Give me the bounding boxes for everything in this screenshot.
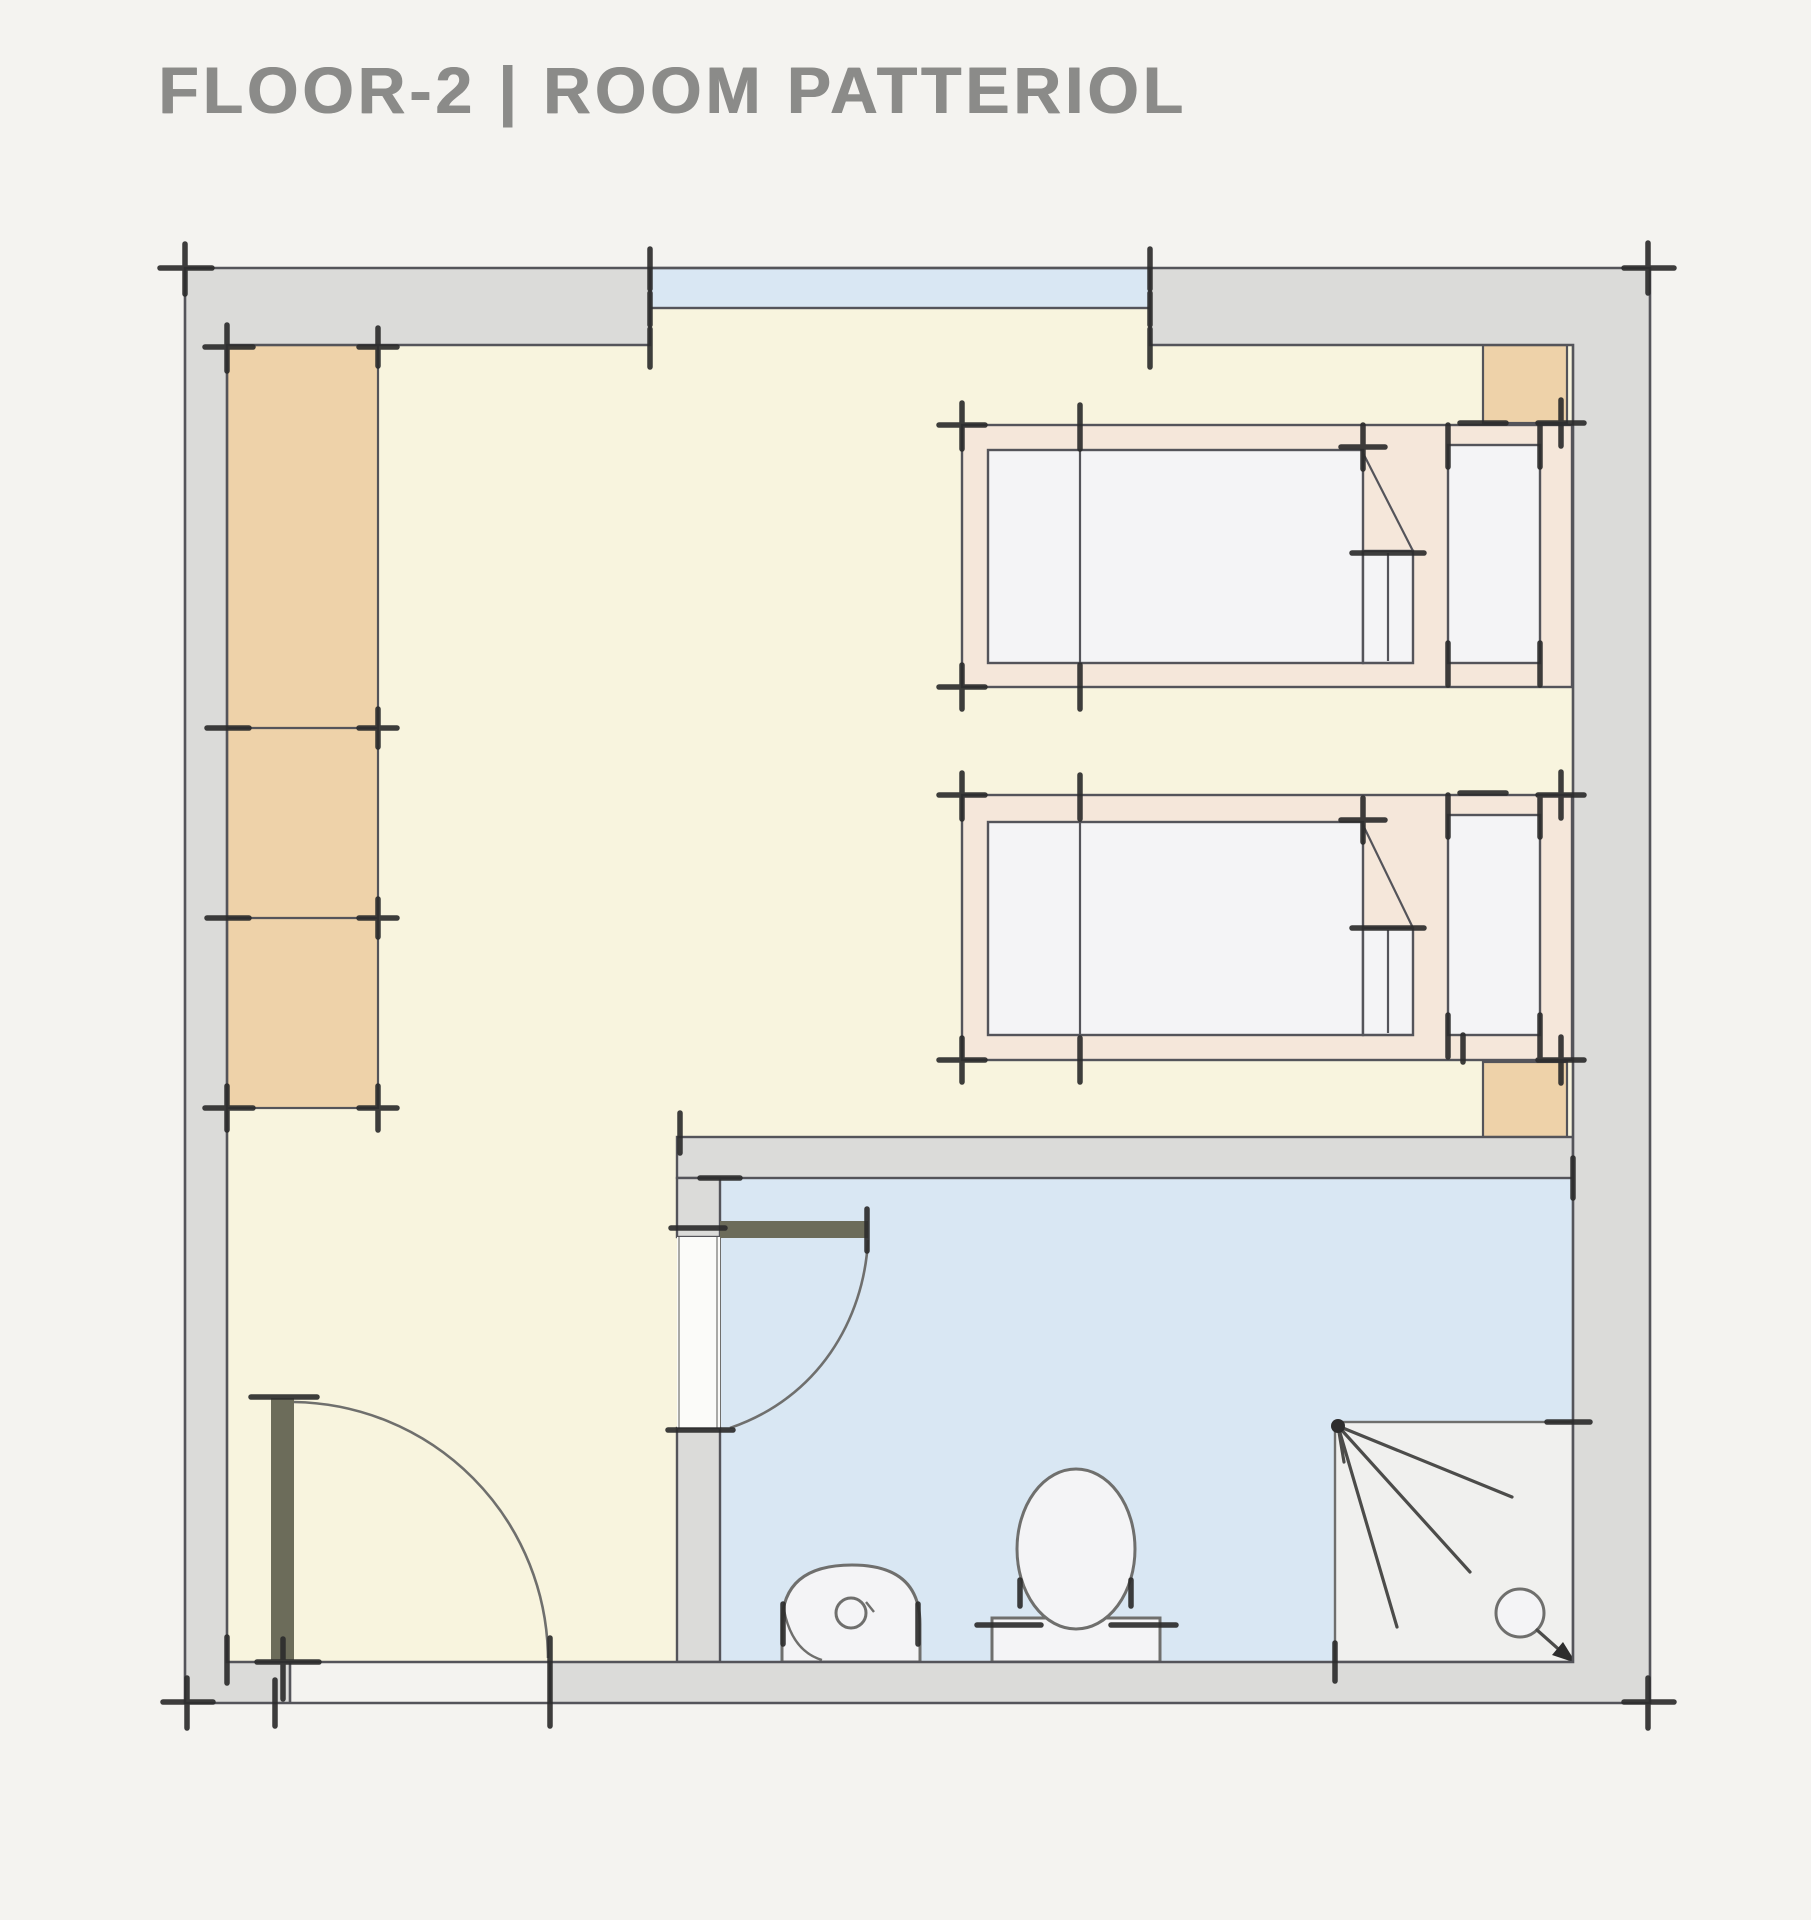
bathroom-door-leaf (720, 1221, 868, 1238)
bed-2-mattress (988, 822, 1363, 1035)
shower-spray-origin (1331, 1419, 1345, 1433)
bathroom-wall-left-lower (677, 1428, 720, 1662)
bathroom-doorway-gap (677, 1237, 720, 1428)
entry-door-leaf (271, 1398, 294, 1660)
sink-drain (836, 1598, 866, 1628)
toilet-bowl (1017, 1469, 1135, 1629)
window (650, 268, 1150, 308)
bathroom (677, 1137, 1576, 1663)
floor-plan-page: FLOOR-2 | ROOM PATTERIOL (0, 0, 1811, 1920)
bathroom-wall-top (677, 1137, 1573, 1178)
sink (782, 1565, 920, 1662)
bed-1-mattress (988, 450, 1363, 663)
floor-plan-drawing (0, 0, 1811, 1920)
bed-1 (962, 425, 1572, 687)
bed-1-pillow (1448, 445, 1540, 663)
closet-block-top-right (1483, 345, 1567, 423)
bed-2-pillow (1448, 815, 1540, 1035)
closet-block-bottom-right (1483, 1062, 1567, 1137)
shower (1331, 1419, 1576, 1663)
bed-2 (962, 795, 1572, 1060)
